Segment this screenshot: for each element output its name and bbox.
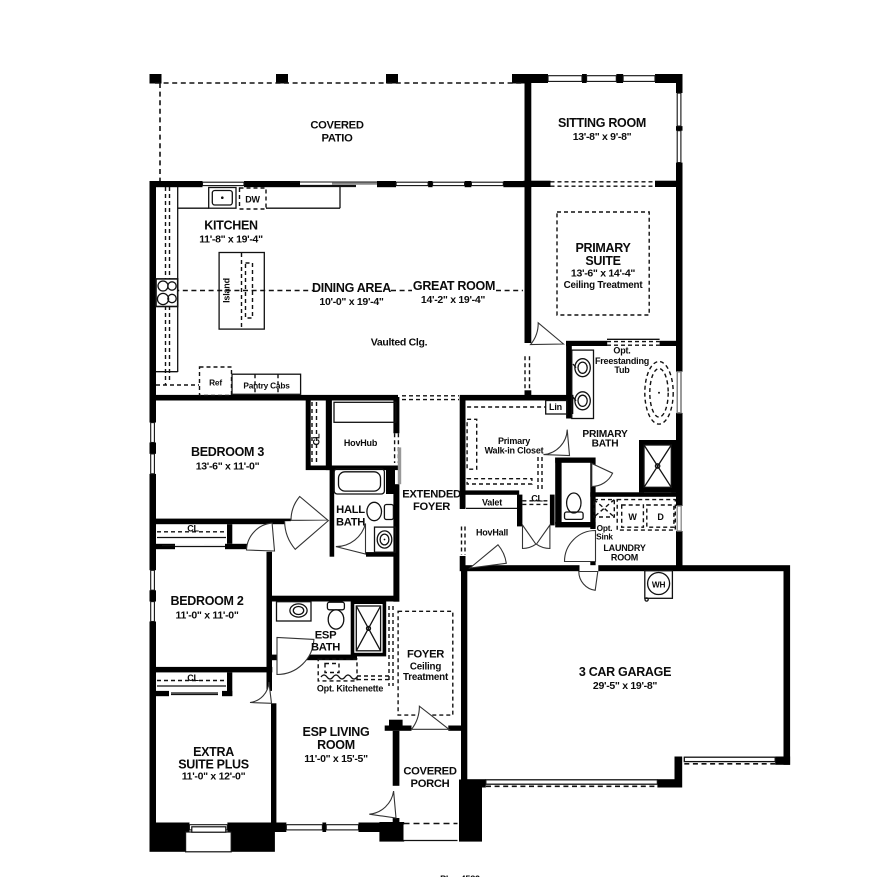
- svg-text:Ref: Ref: [209, 378, 222, 388]
- svg-text:11'-0" x 15'-5": 11'-0" x 15'-5": [304, 753, 368, 765]
- svg-text:Tub: Tub: [614, 365, 630, 375]
- svg-text:CL: CL: [187, 524, 199, 534]
- svg-text:29'-5" x 19'-8": 29'-5" x 19'-8": [593, 680, 657, 692]
- svg-text:11'-0" x 12'-0": 11'-0" x 12'-0": [182, 771, 246, 783]
- svg-text:Opt.: Opt.: [613, 346, 630, 356]
- svg-text:13'-8" x 9'-8": 13'-8" x 9'-8": [573, 131, 632, 143]
- svg-text:Ceiling Treatment: Ceiling Treatment: [564, 280, 644, 291]
- svg-text:Valet: Valet: [482, 498, 502, 508]
- svg-text:ESP: ESP: [315, 630, 337, 642]
- svg-text:11'-0" x 11'-0": 11'-0" x 11'-0": [176, 610, 239, 622]
- svg-text:COVERED: COVERED: [403, 766, 456, 778]
- svg-text:ROOM: ROOM: [611, 553, 638, 563]
- svg-text:PRIMARY: PRIMARY: [575, 241, 631, 255]
- svg-text:D: D: [657, 512, 664, 522]
- svg-text:10'-0" x 19'-4": 10'-0" x 19'-4": [319, 296, 383, 308]
- svg-text:Primary: Primary: [498, 436, 530, 446]
- svg-text:BEDROOM 2: BEDROOM 2: [170, 594, 243, 608]
- svg-text:FOYER: FOYER: [407, 649, 444, 661]
- svg-text:Vaulted Clg.: Vaulted Clg.: [371, 337, 428, 349]
- svg-text:BATH: BATH: [336, 517, 365, 529]
- svg-text:11'-8" x 19'-4": 11'-8" x 19'-4": [199, 234, 263, 246]
- svg-text:SUITE PLUS: SUITE PLUS: [178, 758, 249, 772]
- svg-text:CL: CL: [312, 433, 322, 445]
- svg-text:COVERED: COVERED: [310, 120, 363, 132]
- svg-text:HALL: HALL: [336, 504, 365, 516]
- svg-text:13'-6" x 11'-0": 13'-6" x 11'-0": [196, 461, 260, 473]
- svg-text:GREAT ROOM: GREAT ROOM: [413, 279, 495, 293]
- svg-text:HovHub: HovHub: [344, 438, 378, 448]
- svg-text:WH: WH: [652, 580, 666, 590]
- svg-text:BATH: BATH: [592, 439, 619, 450]
- svg-text:DINING AREA: DINING AREA: [312, 281, 391, 295]
- svg-text:W: W: [628, 512, 637, 522]
- svg-text:CL: CL: [531, 494, 543, 504]
- svg-text:ESP LIVING: ESP LIVING: [303, 725, 370, 739]
- svg-text:EXTENDED: EXTENDED: [402, 489, 461, 501]
- svg-text:Treatment: Treatment: [403, 672, 449, 683]
- svg-text:Ceiling: Ceiling: [410, 662, 441, 673]
- svg-text:14'-2" x 19'-4": 14'-2" x 19'-4": [421, 294, 485, 306]
- svg-text:ROOM: ROOM: [317, 738, 355, 752]
- svg-text:Walk-in Closet: Walk-in Closet: [485, 446, 544, 456]
- svg-text:Lin: Lin: [549, 402, 562, 412]
- svg-text:Island: Island: [222, 278, 232, 303]
- svg-text:3 CAR GARAGE: 3 CAR GARAGE: [579, 665, 671, 679]
- svg-text:Sink: Sink: [596, 532, 613, 542]
- svg-text:HovHall: HovHall: [476, 528, 508, 538]
- svg-text:13'-6" x 14'-4": 13'-6" x 14'-4": [571, 268, 635, 280]
- svg-text:SITTING ROOM: SITTING ROOM: [558, 116, 646, 130]
- svg-text:DW: DW: [245, 195, 260, 205]
- svg-text:LAUNDRY: LAUNDRY: [603, 543, 645, 553]
- svg-text:Opt. Kitchenette: Opt. Kitchenette: [317, 684, 383, 694]
- svg-text:BEDROOM 3: BEDROOM 3: [191, 445, 264, 459]
- svg-text:PORCH: PORCH: [411, 778, 450, 790]
- svg-text:Pantry Cabs: Pantry Cabs: [243, 381, 290, 391]
- svg-text:KITCHEN: KITCHEN: [204, 219, 258, 233]
- svg-text:PATIO: PATIO: [321, 133, 353, 145]
- svg-text:BATH: BATH: [311, 642, 340, 654]
- svg-text:SUITE: SUITE: [585, 254, 620, 268]
- svg-text:FOYER: FOYER: [413, 501, 450, 513]
- svg-text:CL: CL: [187, 673, 199, 683]
